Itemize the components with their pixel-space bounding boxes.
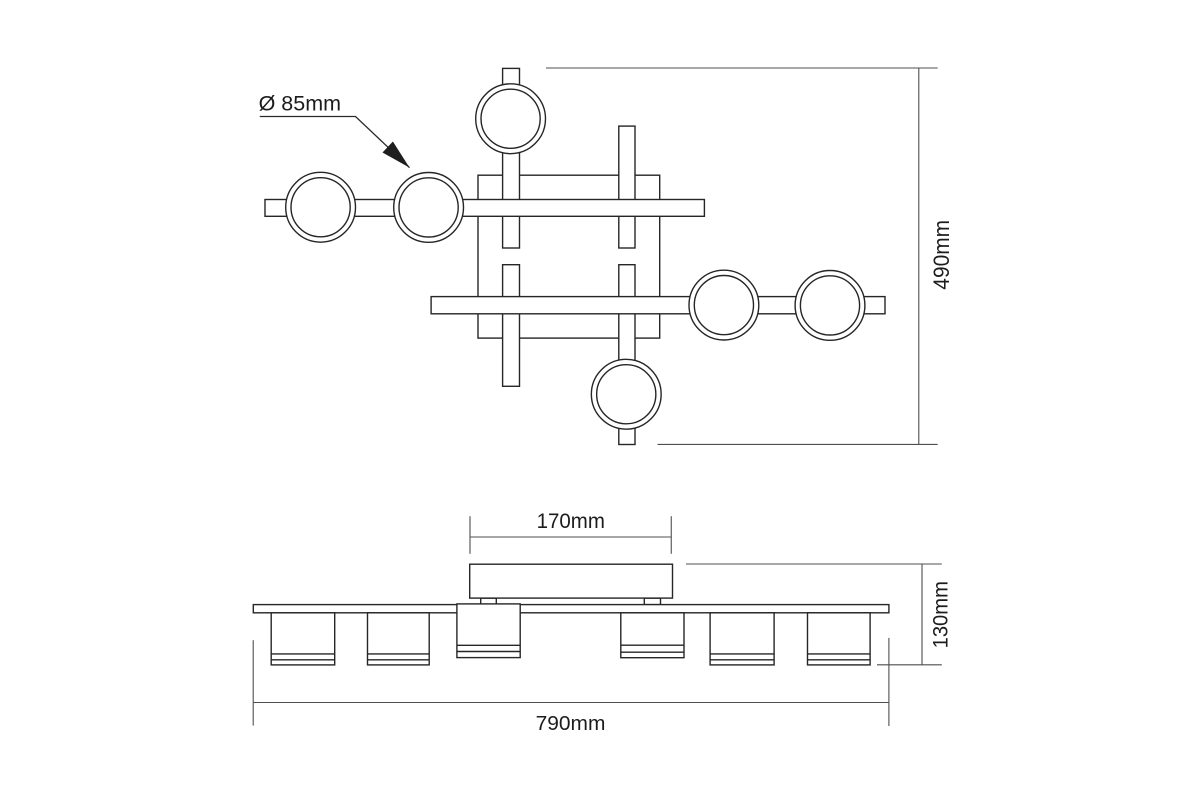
- svg-text:490mm: 490mm: [929, 220, 954, 290]
- svg-text:Ø 85mm: Ø 85mm: [259, 91, 341, 115]
- svg-text:790mm: 790mm: [536, 712, 606, 735]
- svg-text:170mm: 170mm: [537, 510, 605, 533]
- svg-text:130mm: 130mm: [928, 581, 952, 648]
